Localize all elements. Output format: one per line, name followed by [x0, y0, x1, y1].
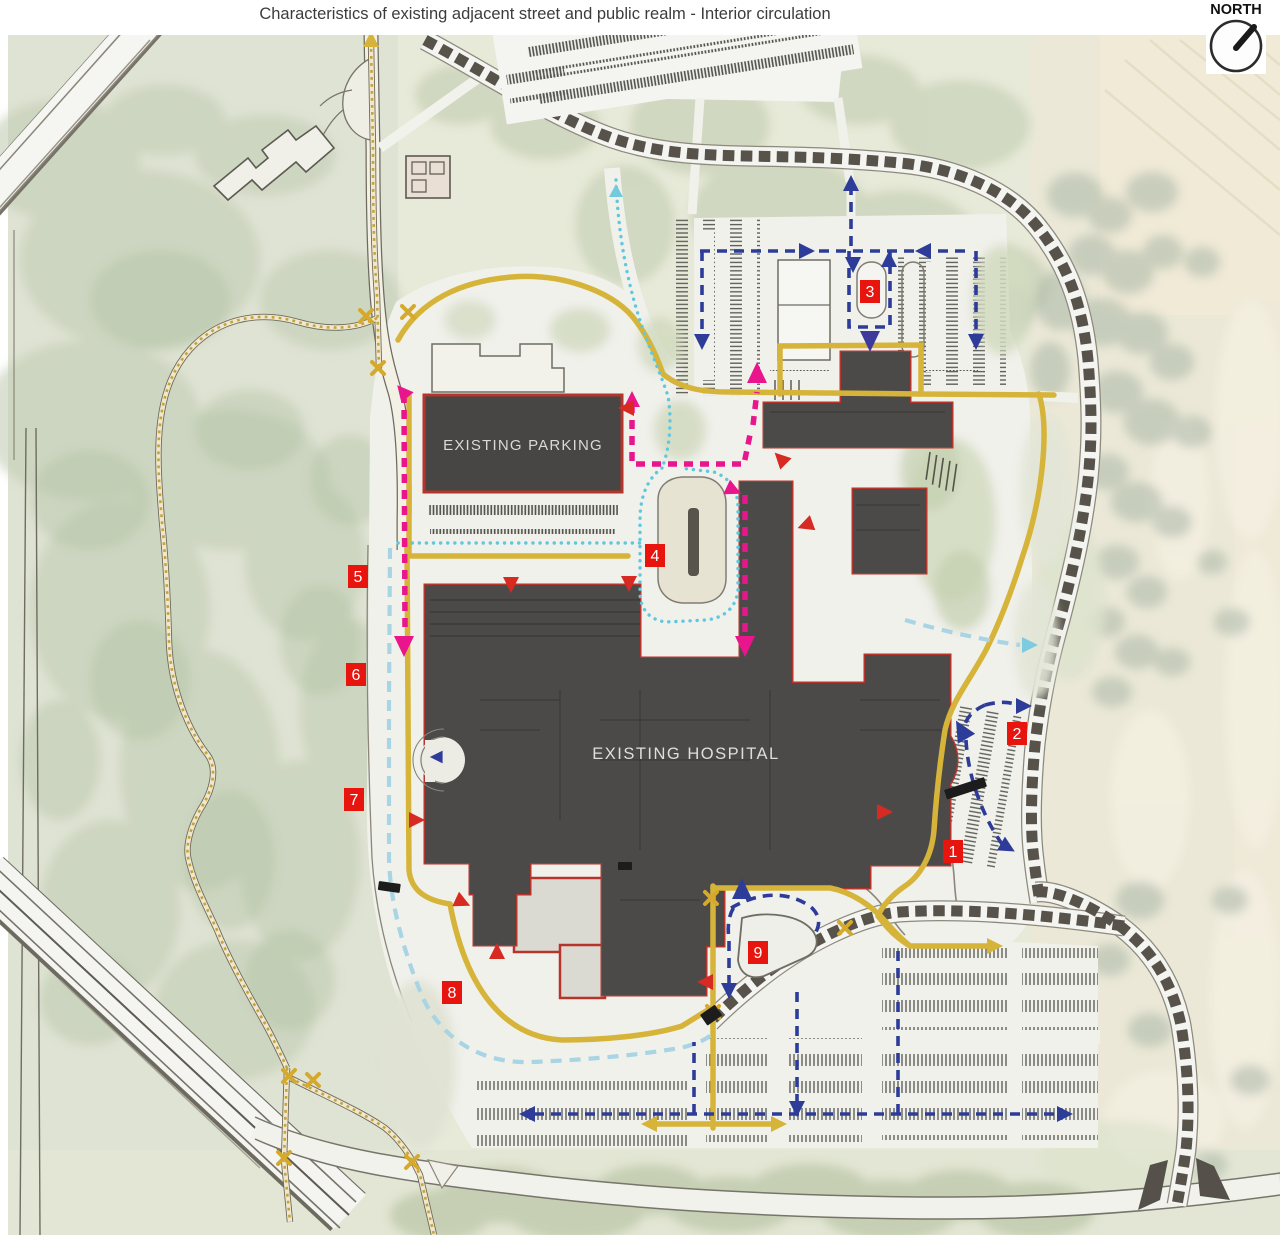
svg-text:4: 4	[651, 548, 660, 565]
svg-text:1: 1	[949, 844, 958, 861]
svg-text:3: 3	[866, 284, 875, 301]
svg-text:7: 7	[350, 792, 359, 809]
svg-text:NORTH: NORTH	[1210, 2, 1262, 18]
svg-text:5: 5	[354, 569, 363, 586]
svg-text:EXISTING HOSPITAL: EXISTING HOSPITAL	[592, 745, 779, 763]
svg-text:2: 2	[1013, 726, 1022, 743]
svg-text:Characteristics of existing ad: Characteristics of existing adjacent str…	[259, 5, 830, 23]
svg-text:6: 6	[352, 667, 361, 684]
svg-text:EXISTING PARKING: EXISTING PARKING	[443, 437, 603, 454]
svg-text:8: 8	[448, 985, 457, 1002]
svg-text:9: 9	[754, 945, 763, 962]
